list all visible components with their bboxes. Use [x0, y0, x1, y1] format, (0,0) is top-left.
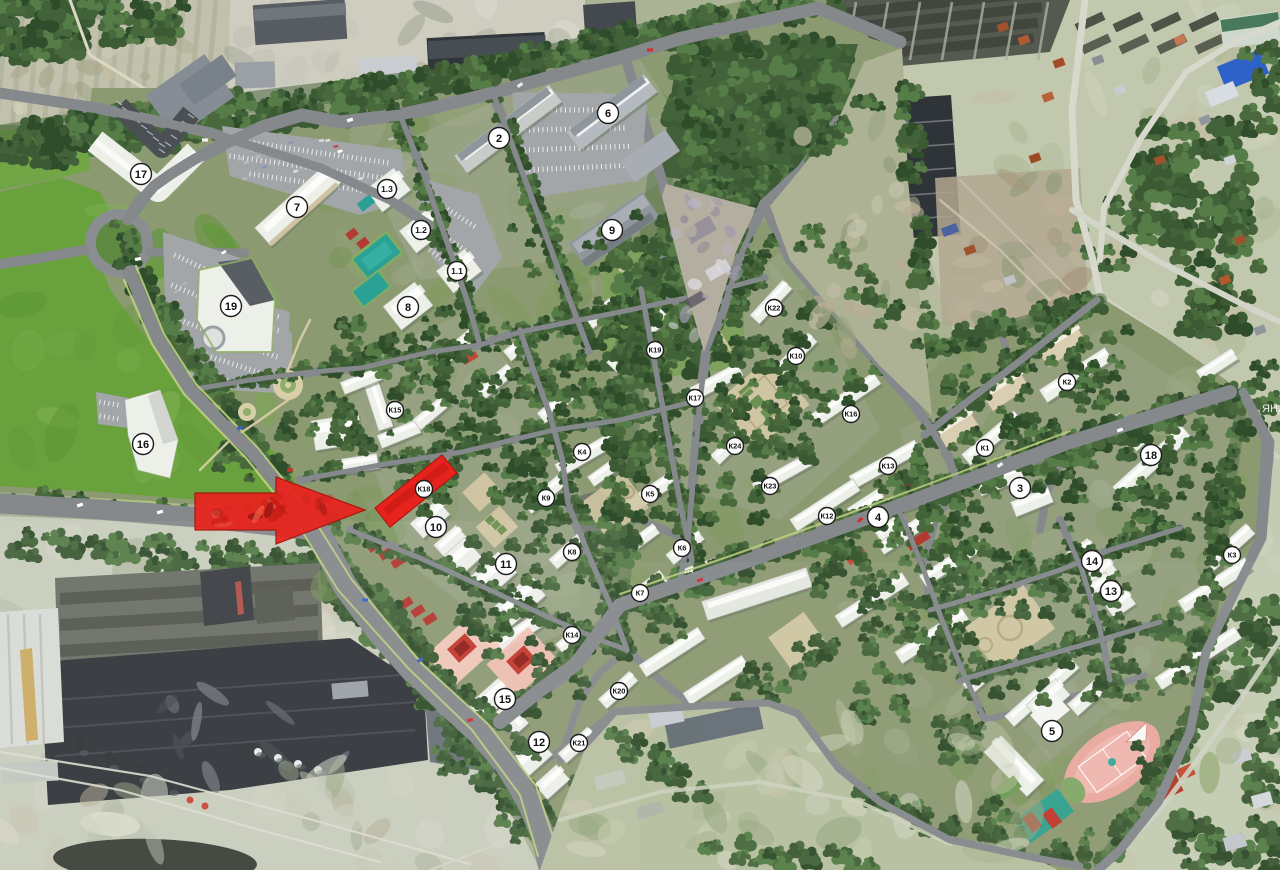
svg-text:К9: К9 [542, 494, 551, 503]
svg-text:ЯНД: ЯНД [1262, 403, 1280, 415]
svg-text:17: 17 [135, 169, 147, 181]
svg-text:К15: К15 [389, 406, 402, 415]
svg-text:К3: К3 [1228, 551, 1237, 560]
svg-text:4: 4 [875, 512, 882, 524]
svg-text:К18: К18 [418, 485, 431, 494]
svg-text:К13: К13 [882, 462, 895, 471]
svg-text:18: 18 [1145, 450, 1157, 462]
svg-text:К19: К19 [649, 346, 662, 355]
svg-text:13: 13 [1105, 586, 1117, 598]
svg-text:К7: К7 [636, 589, 645, 598]
svg-text:14: 14 [1086, 556, 1099, 568]
svg-text:К22: К22 [768, 304, 781, 313]
svg-text:16: 16 [137, 439, 149, 451]
svg-text:11: 11 [500, 559, 512, 571]
svg-text:8: 8 [405, 302, 411, 314]
svg-text:2: 2 [496, 133, 502, 145]
svg-text:К2: К2 [1063, 378, 1072, 387]
svg-text:12: 12 [533, 737, 545, 749]
svg-text:6: 6 [605, 108, 611, 120]
svg-text:К10: К10 [790, 352, 803, 361]
svg-text:1.2: 1.2 [415, 225, 427, 235]
svg-text:К24: К24 [729, 442, 743, 451]
svg-text:9: 9 [609, 225, 615, 237]
svg-text:К14: К14 [566, 631, 580, 640]
svg-text:К21: К21 [573, 739, 586, 748]
svg-text:К6: К6 [678, 544, 687, 553]
svg-text:К17: К17 [689, 394, 702, 403]
svg-text:10: 10 [430, 522, 442, 534]
svg-text:1.1: 1.1 [451, 266, 463, 276]
svg-text:К5: К5 [646, 490, 655, 499]
svg-text:К23: К23 [764, 482, 777, 491]
svg-text:К12: К12 [821, 512, 834, 521]
svg-text:15: 15 [499, 694, 511, 706]
svg-text:3: 3 [1017, 483, 1023, 495]
svg-text:К4: К4 [578, 448, 588, 457]
svg-text:К20: К20 [613, 687, 626, 696]
svg-text:К8: К8 [568, 548, 577, 557]
svg-text:1.3: 1.3 [381, 184, 393, 194]
svg-text:К16: К16 [845, 410, 858, 419]
svg-text:К1: К1 [981, 444, 990, 453]
svg-text:5: 5 [1049, 726, 1055, 738]
svg-text:19: 19 [225, 301, 237, 313]
svg-text:7: 7 [294, 202, 300, 214]
